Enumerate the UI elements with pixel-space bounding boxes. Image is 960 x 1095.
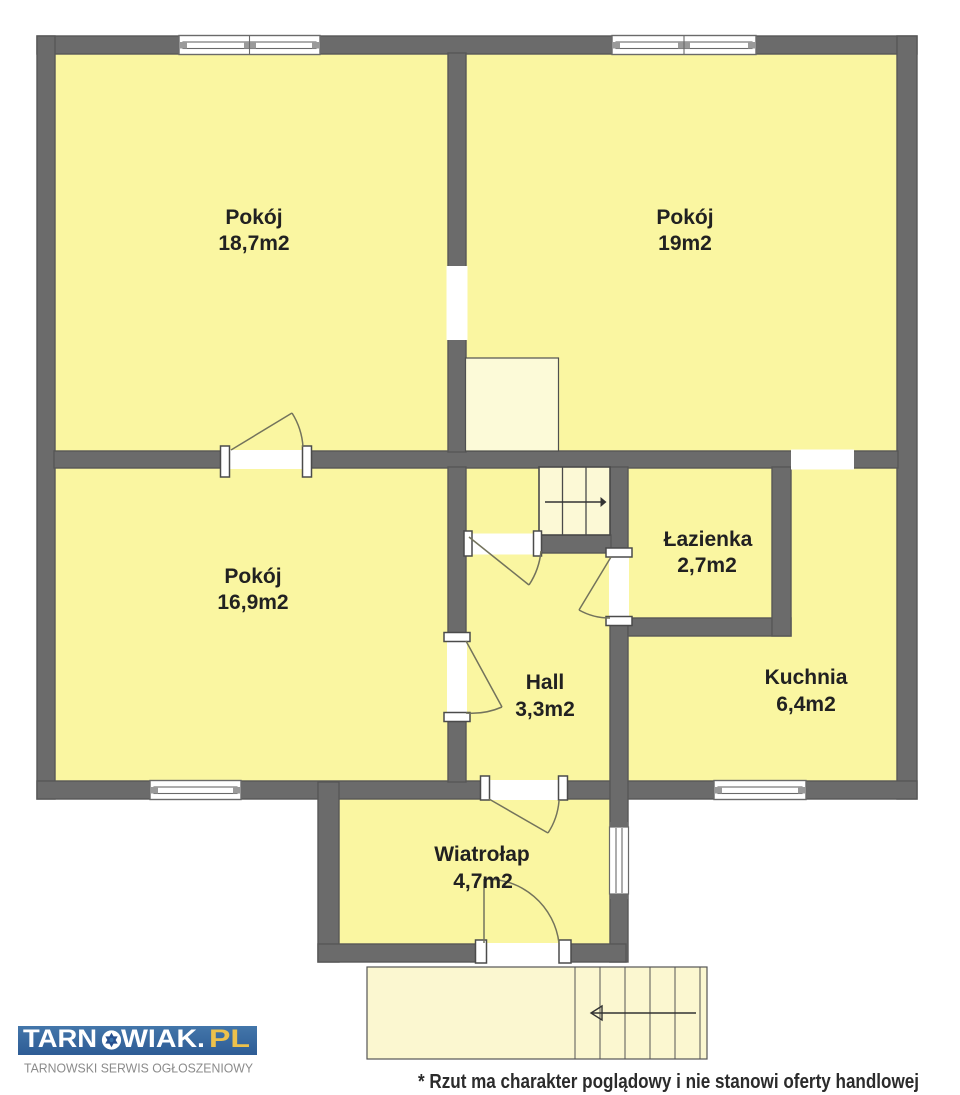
- svg-text:2,7m2: 2,7m2: [677, 554, 737, 577]
- svg-text:Łazienka: Łazienka: [664, 528, 753, 551]
- svg-text:19m2: 19m2: [658, 232, 712, 255]
- svg-text:TARNOWSKI SERWIS OGŁOSZENIOWY: TARNOWSKI SERWIS OGŁOSZENIOWY: [24, 1061, 253, 1076]
- svg-text:16,9m2: 16,9m2: [217, 591, 288, 614]
- svg-text:Hall: Hall: [526, 671, 565, 694]
- svg-text:Kuchnia: Kuchnia: [765, 666, 848, 689]
- svg-text:TARN: TARN: [23, 1025, 97, 1053]
- svg-text:18,7m2: 18,7m2: [218, 232, 289, 255]
- svg-text:6,4m2: 6,4m2: [776, 693, 836, 716]
- svg-text:4,7m2: 4,7m2: [453, 870, 513, 893]
- svg-text:3,3m2: 3,3m2: [515, 698, 575, 721]
- svg-text:* Rzut ma charakter poglądowy: * Rzut ma charakter poglądowy i nie stan…: [418, 1071, 919, 1093]
- svg-text:PL: PL: [209, 1025, 250, 1053]
- svg-text:WIAK.: WIAK.: [121, 1025, 205, 1053]
- svg-text:Pokój: Pokój: [656, 206, 713, 229]
- svg-text:Pokój: Pokój: [224, 565, 281, 588]
- svg-text:Pokój: Pokój: [225, 206, 282, 229]
- svg-text:Wiatrołap: Wiatrołap: [434, 843, 529, 866]
